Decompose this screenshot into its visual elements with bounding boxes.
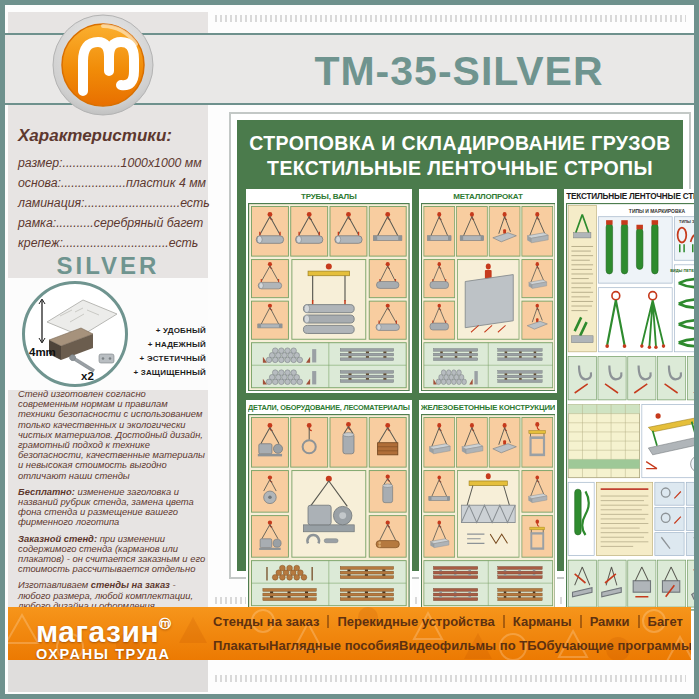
brand-logo[interactable] (51, 13, 155, 117)
subhead-types: ТИПЫ И МАРКИРОВКА (629, 208, 686, 214)
bracket-icon (99, 354, 114, 363)
feature-item: + ЭСТЕТИЧНЫЙ (126, 354, 206, 363)
frame-corner-photo: 4mm x2 (22, 281, 128, 387)
halftone-strip-top (215, 15, 686, 22)
subhead-loops: ВИДЫ ПЕТЕЛЬ СТРОПОВ (670, 268, 699, 273)
screws-count-label: x2 (81, 370, 94, 382)
characteristic-mount: крепеж:...............................ес… (18, 233, 202, 253)
description-block: Стенд изготовлен согласно современным но… (18, 389, 206, 617)
page-title: ТМ-35-SILVER (230, 42, 688, 100)
characteristic-lamination: ламинация:............................ес… (18, 193, 202, 213)
panel-textile-title: ТЕКСТИЛЬНЫЕ ЛЕНТОЧНЫЕ СТРОПЫ (566, 190, 699, 203)
halftone-strip-bottom (215, 675, 686, 682)
description-paragraph: Заказной стенд: при изменении содержимог… (18, 534, 206, 575)
menu-divider (580, 615, 582, 628)
panel-pipes-title: ТРУБЫ, ВАЛЫ (248, 190, 410, 203)
footer-brand-word: магазин (36, 615, 159, 648)
panel-textile: ТЕКСТИЛЬНЫЕ ЛЕНТОЧНЫЕ СТРОПЫ ТИП (564, 189, 699, 613)
panel-concrete: ЖЕЛЕЗОБЕТОННЫЕ КОНСТРУКЦИИ (419, 400, 558, 612)
description-paragraph: Бесплатно: изменение заголовка и названи… (18, 487, 206, 528)
menu-item-visual-aids[interactable]: Наглядные пособия (269, 638, 399, 653)
features-list: + УДОБНЫЙ + НАДЕЖНЫЙ + ЭСТЕТИЧНЫЙ + ЗАЩИ… (126, 326, 206, 382)
footer-menu-row2: Плакаты Наглядные пособия Видеофильмы по… (213, 634, 683, 658)
poster-title-line1: СТРОПОВКА И СКЛАДИРОВАНИЕ ГРУЗОВ (246, 131, 674, 156)
product-page: ТМ-35-SILVER Характеристики: размер:....… (0, 0, 699, 699)
panel-details-illustration (248, 414, 410, 610)
panel-pipes: ТРУБЫ, ВАЛЫ (246, 189, 412, 393)
footer-menu: Стенды на заказ Перекидные устройства Ка… (213, 607, 683, 660)
panel-metal-title: МЕТАЛЛОПРОКАТ (421, 190, 556, 203)
characteristic-size: размер:.................1000x1000 мм (18, 153, 202, 173)
footer-nav-bar: магазинⓜ ОХРАНЫ ТРУДА Стенды на заказ Пе… (8, 607, 691, 660)
menu-divider (503, 615, 505, 628)
panel-metal: МЕТАЛЛОПРОКАТ (419, 189, 558, 393)
panel-details-title: ДЕТАЛИ, ОБОРУДОВАНИЕ, ЛЕСОМАТЕРИАЛЫ (248, 401, 410, 414)
menu-item-frames[interactable]: Рамки (590, 614, 630, 629)
series-label: SILVER (8, 252, 208, 280)
panel-metal-illustration (421, 203, 556, 391)
panel-concrete-illustration (421, 414, 556, 610)
menu-divider (638, 615, 640, 628)
subhead-links: ТИПЫ ЗВЕНЬЕВ (679, 219, 699, 224)
menu-item-safety-videos[interactable]: Видеофильмы по ТБ (399, 638, 536, 653)
panel-textile-illustration: ТИПЫ И МАРКИРОВКА ТИПЫ ЗВЕНЬЕВ (566, 203, 699, 611)
menu-divider (327, 615, 329, 628)
footer-brand-word2: ОХРАНЫ ТРУДА (36, 647, 172, 660)
poster-title-line2: ТЕКСТИЛЬНЫЕ ЛЕНТОЧНЫЕ СТРОПЫ (246, 156, 674, 181)
frame-info-box: 4mm x2 + УДОБНЫЙ + НАДЕЖНЫЙ + ЭСТЕТИЧНЫЙ… (8, 278, 208, 390)
panel-details: ДЕТАЛИ, ОБОРУДОВАНИЕ, ЛЕСОМАТЕРИАЛЫ (246, 400, 412, 612)
menu-item-baguette[interactable]: Багет (648, 614, 683, 629)
trademark-icon: ⓜ (159, 617, 172, 631)
brand-logo-icon (51, 13, 155, 117)
menu-item-pockets[interactable]: Карманы (513, 614, 572, 629)
footer-brand-logo[interactable]: магазинⓜ ОХРАНЫ ТРУДА (36, 609, 172, 660)
menu-item-flip-systems[interactable]: Перекидные устройства (337, 614, 494, 629)
feature-item: + ЗАЩИЩЕННЫЙ (126, 368, 206, 377)
panel-pipes-illustration (248, 203, 410, 391)
menu-item-posters[interactable]: Плакаты (213, 638, 269, 653)
description-paragraph: Стенд изготовлен согласно современным но… (18, 389, 206, 481)
left-column-footer-block (8, 660, 208, 692)
characteristic-base: основа:...................пластик 4 мм (18, 173, 202, 193)
footer-menu-row1: Стенды на заказ Перекидные устройства Ка… (213, 610, 683, 634)
menu-item-training-programs[interactable]: Обучающие программы (537, 638, 692, 653)
characteristics-block: Характеристики: размер:.................… (18, 126, 202, 253)
feature-item: + НАДЕЖНЫЙ (126, 340, 206, 349)
frame-corner-illustration: 4mm x2 (25, 284, 125, 384)
panel-concrete-title: ЖЕЛЕЗОБЕТОННЫЕ КОНСТРУКЦИИ (421, 401, 556, 414)
characteristics-heading: Характеристики: (18, 126, 202, 146)
product-poster-image[interactable]: СТРОПОВКА И СКЛАДИРОВАНИЕ ГРУЗОВ ТЕКСТИЛ… (229, 112, 691, 579)
menu-item-stands[interactable]: Стенды на заказ (213, 614, 319, 629)
feature-item: + УДОБНЫЙ (126, 326, 206, 335)
characteristic-frame: рамка:...........серебряный багет (18, 213, 202, 233)
frame-thickness-label: 4mm (29, 346, 56, 358)
poster-background: СТРОПОВКА И СКЛАДИРОВАНИЕ ГРУЗОВ ТЕКСТИЛ… (237, 120, 683, 571)
